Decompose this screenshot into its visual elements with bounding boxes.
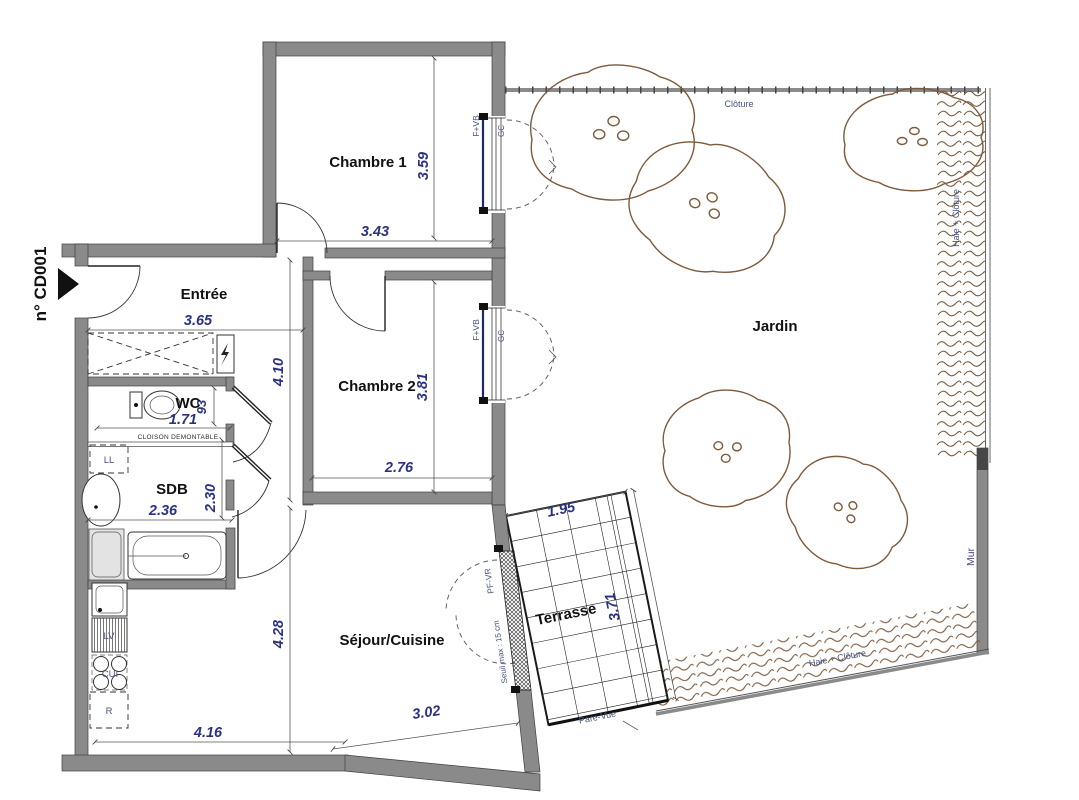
wall-chambre2-top-b <box>385 271 492 280</box>
room-label-sejour: Séjour/Cuisine <box>339 632 444 649</box>
room-label-chambre1: Chambre 1 <box>329 154 407 171</box>
wall-right-a <box>492 42 505 118</box>
wall-left-a <box>75 244 88 266</box>
dim-sejour-width2: 4.16 <box>193 725 223 741</box>
shutter-arc-c2-bottom <box>507 356 554 399</box>
door-sdb-leaf <box>232 444 271 481</box>
annotation-pfvr: PF-VR <box>482 568 495 595</box>
door-entry-arc <box>88 266 140 318</box>
dim-sejour-height: 4.28 <box>271 619 287 649</box>
wall-sejour-east-top <box>492 505 510 551</box>
wall-cloison-demontable <box>88 442 233 447</box>
tree-4 <box>663 390 790 507</box>
wall-left-chambre1 <box>263 42 276 257</box>
annotation-cloison: CLOISON DEMONTABLE <box>138 434 219 441</box>
door-chambre1-arc <box>277 203 327 253</box>
bathtub <box>128 532 226 579</box>
floor-plan-page: 1.95 3.71 Terrasse Pare-Vue <box>0 0 1079 800</box>
window-sejour-sill-top <box>494 545 503 552</box>
washbasin <box>82 474 120 526</box>
window-sejour-sill-bottom <box>511 686 520 693</box>
door-wc-leaf <box>232 386 272 424</box>
tree-2 <box>611 116 803 297</box>
entree-closet-cross <box>88 333 213 374</box>
wall-wc-top <box>88 377 233 386</box>
appliance-label-r: R <box>106 706 113 717</box>
dim-c1-width: 3.43 <box>361 224 389 240</box>
window-c2-sill-bottom <box>479 397 488 404</box>
shutter-chevron-c2 <box>549 350 556 364</box>
wall-sejour-east-bottom <box>516 690 540 772</box>
wall-chambre2-top-a <box>303 271 330 280</box>
annotation-mur: Mur <box>965 547 977 566</box>
wall-bathtub-right <box>226 528 235 589</box>
shutter-arc-c1-bottom <box>507 166 554 209</box>
wall-entree-top <box>62 244 276 257</box>
shutter-arc-sejour-bottom <box>456 615 515 664</box>
dim-sdb-height: 2.30 <box>203 484 219 513</box>
wall-left-b <box>75 318 88 770</box>
room-label-sdb: SDB <box>156 481 188 498</box>
appliance-label-cui: CUI <box>102 669 118 680</box>
dim-sejour-width: 3.02 <box>411 703 441 723</box>
dim-c1-height: 3.59 <box>416 152 432 180</box>
window-c1-sill-bottom <box>479 207 488 214</box>
room-label-wc: WC <box>176 395 201 412</box>
door-wc-arc <box>233 423 271 462</box>
annotation-seuil: Seuil max : 15 cm <box>492 619 510 684</box>
hedge-right <box>937 88 985 460</box>
annotation-cloture: Clôture <box>724 99 753 109</box>
appliance-label-ll: LL <box>104 455 115 466</box>
tree-1 <box>531 65 695 200</box>
pare-vue-leader <box>623 721 638 730</box>
dim-entree-width: 3.65 <box>184 313 213 329</box>
shutter-chevron-c1 <box>549 160 556 174</box>
appliance-label-lv: LV <box>104 631 116 642</box>
window-c2-sill-top <box>479 303 488 310</box>
door-chambre2-arc <box>330 276 385 331</box>
wall-right-c <box>492 400 505 505</box>
plan-reference: n° CD001 <box>31 247 50 322</box>
wall-top <box>263 42 505 56</box>
wall-bottom <box>62 755 348 771</box>
floor-plan-drawing: 1.95 3.71 Terrasse Pare-Vue <box>0 0 1079 800</box>
dim-line-sejour-width <box>333 723 518 749</box>
annotation-gc-2: GC <box>497 330 506 342</box>
wall-chambre2-bottom <box>303 492 492 504</box>
wall-bottom-slant <box>345 755 540 791</box>
room-label-jardin: Jardin <box>752 318 797 335</box>
dim-sdb-width: 2.36 <box>148 503 178 519</box>
shutter-arc-c2-top <box>507 310 554 357</box>
windows <box>479 113 531 693</box>
dim-wc-width: 1.71 <box>169 412 197 428</box>
dim-c2-width: 2.76 <box>384 460 414 476</box>
dim-c2-height: 3.81 <box>415 373 431 401</box>
window-chambre2 <box>479 303 505 404</box>
room-label-chambre2: Chambre 2 <box>338 378 416 395</box>
entry-arrow-icon <box>58 268 79 300</box>
shower-counter <box>89 529 124 580</box>
dim-entree-height: 4.10 <box>271 358 287 387</box>
door-sejour-arc <box>238 510 306 578</box>
annotation-fvb-1: F+VB <box>471 115 481 137</box>
tree-5 <box>767 433 926 591</box>
annotation-haie-right: Haie + Clôture <box>951 189 961 247</box>
room-label-entree: Entrée <box>181 286 228 303</box>
garden-wall-mur-cap <box>977 448 988 470</box>
wall-chambre1-bottom <box>325 248 505 258</box>
annotation-gc-1: GC <box>497 125 506 137</box>
garden-wall-mur <box>977 448 988 654</box>
wall-hall <box>303 257 313 505</box>
wall-right-b <box>492 210 505 308</box>
kitchen-sink <box>92 583 127 616</box>
wall-sdb-right <box>226 480 234 510</box>
annotation-fvb-2: F+VB <box>471 319 481 341</box>
